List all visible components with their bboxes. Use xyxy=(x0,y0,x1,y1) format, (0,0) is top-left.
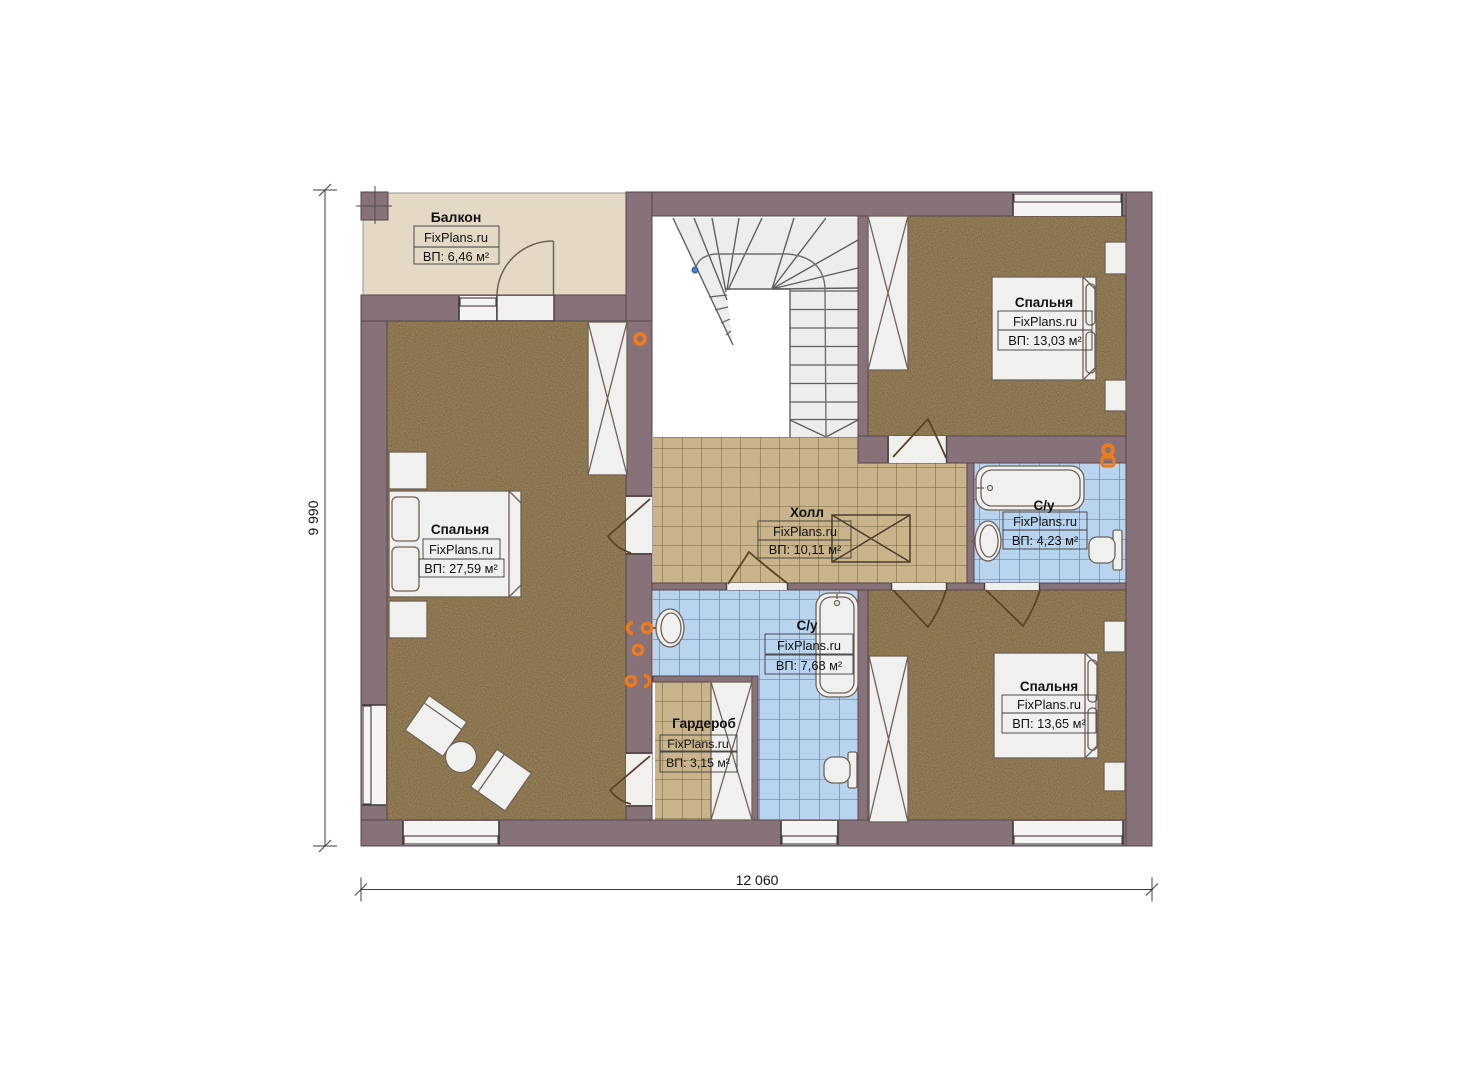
svg-text:ВП: 13,03 м²: ВП: 13,03 м² xyxy=(1008,333,1082,348)
svg-text:FixPlans.ru: FixPlans.ru xyxy=(777,638,841,653)
svg-text:12 060: 12 060 xyxy=(736,872,779,888)
svg-text:ВП: 3,15 м²: ВП: 3,15 м² xyxy=(666,756,730,770)
svg-text:Спальня: Спальня xyxy=(1020,679,1078,694)
svg-text:9 990: 9 990 xyxy=(305,500,321,535)
svg-text:С/у: С/у xyxy=(1033,498,1055,513)
svg-text:FixPlans.ru: FixPlans.ru xyxy=(773,524,837,539)
svg-text:FixPlans.ru: FixPlans.ru xyxy=(667,737,729,751)
svg-text:Балкон: Балкон xyxy=(431,209,482,225)
svg-text:ВП: 27,59 м²: ВП: 27,59 м² xyxy=(424,561,498,576)
svg-text:FixPlans.ru: FixPlans.ru xyxy=(1017,697,1081,712)
svg-text:FixPlans.ru: FixPlans.ru xyxy=(429,542,493,557)
svg-text:Спальня: Спальня xyxy=(1015,295,1073,310)
svg-text:Спальня: Спальня xyxy=(431,522,489,537)
svg-text:ВП: 7,68 м²: ВП: 7,68 м² xyxy=(776,658,843,673)
svg-text:FixPlans.ru: FixPlans.ru xyxy=(1013,514,1077,529)
svg-text:Гардероб: Гардероб xyxy=(672,716,736,731)
svg-text:ВП: 4,23 м²: ВП: 4,23 м² xyxy=(1012,533,1079,548)
svg-text:FixPlans.ru: FixPlans.ru xyxy=(424,230,488,245)
svg-text:ВП: 13,65 м²: ВП: 13,65 м² xyxy=(1012,716,1086,731)
svg-text:С/у: С/у xyxy=(796,618,818,633)
svg-text:ВП: 10,11 м²: ВП: 10,11 м² xyxy=(769,542,842,557)
svg-text:FixPlans.ru: FixPlans.ru xyxy=(1013,314,1077,329)
svg-text:Холл: Холл xyxy=(790,505,824,520)
svg-text:ВП: 6,46 м²: ВП: 6,46 м² xyxy=(423,249,490,264)
